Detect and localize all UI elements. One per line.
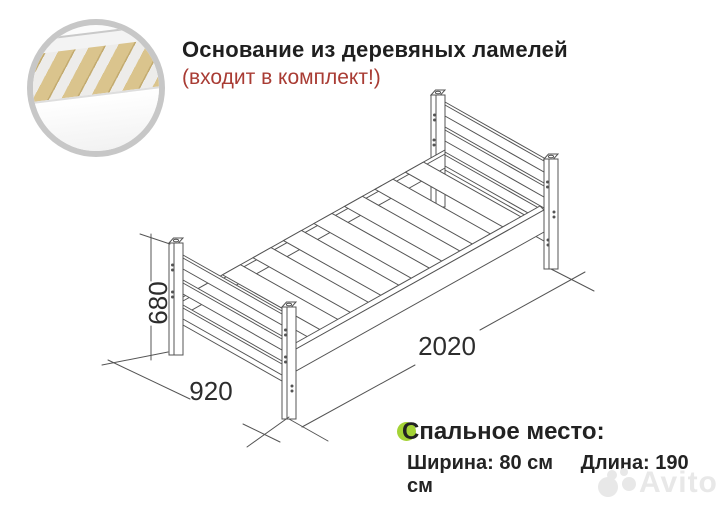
product-infographic: Основание из деревяных ламелей (входит в… xyxy=(0,0,720,510)
dimension-length-label: 2020 xyxy=(418,331,476,361)
post-foot-near xyxy=(282,302,296,419)
avito-logo-icon xyxy=(620,468,628,476)
sleeping-area-heading-text: Спальное место: xyxy=(402,418,605,445)
dimension-width-label: 920 xyxy=(189,376,232,406)
avito-logo-icon xyxy=(622,477,636,491)
avito-watermark-text: Avito xyxy=(639,467,718,499)
post-head-near xyxy=(544,154,558,269)
sleeping-area-heading: Спальное место: xyxy=(397,420,720,444)
width-spec: Ширина: 80 см xyxy=(407,452,553,474)
avito-watermark: Avito xyxy=(598,467,720,503)
dimension-height-label: 680 xyxy=(143,281,173,324)
avito-logo-icon xyxy=(598,477,618,497)
